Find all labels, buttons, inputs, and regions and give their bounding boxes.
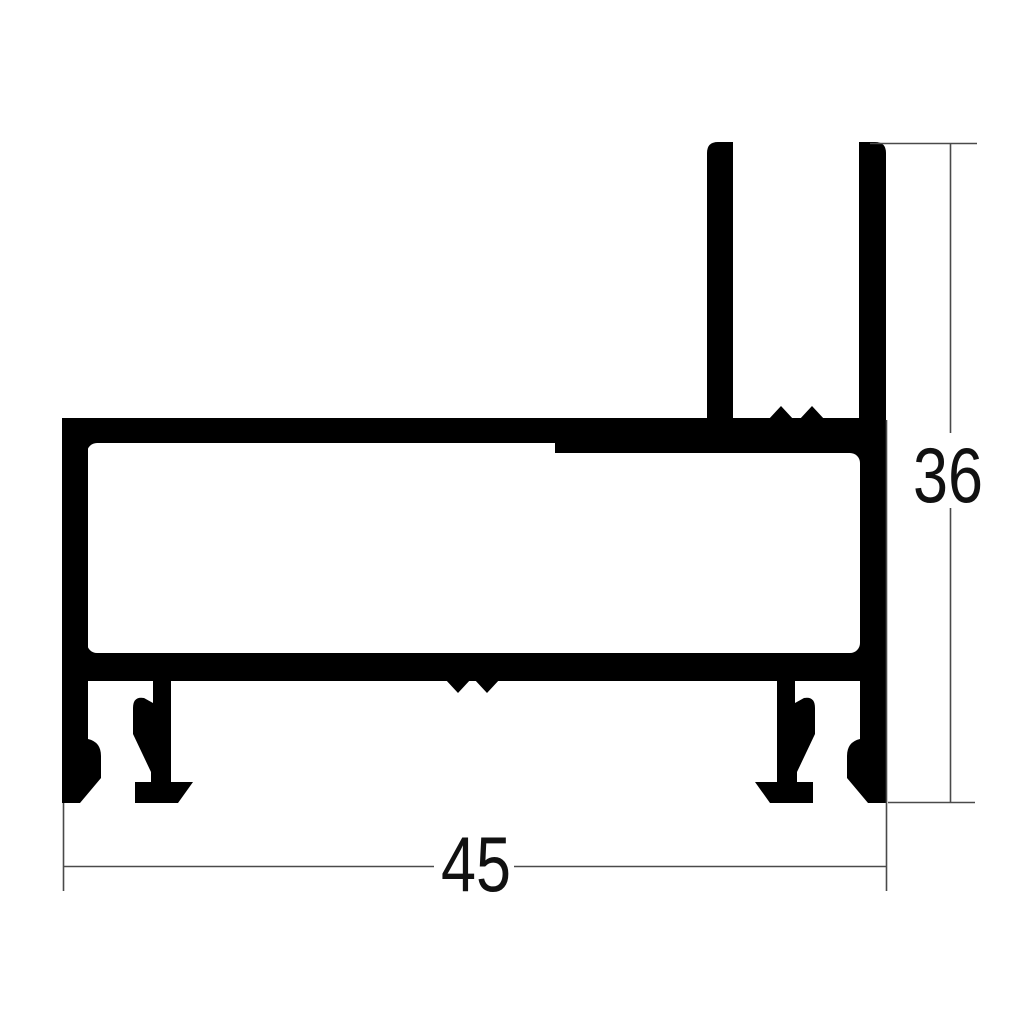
profile-right-fin	[859, 142, 886, 420]
profile-left-wall	[62, 418, 101, 803]
cavity-fillet-bottom-right	[850, 643, 860, 653]
top-serration-teeth	[768, 406, 825, 420]
dimension-lines	[63, 143, 977, 891]
bottom-serration-teeth	[445, 679, 500, 693]
profile-drawing-svg: 36 45	[0, 0, 1024, 1024]
cavity-fillet-bottom-left	[87, 643, 97, 653]
cavity-fillet-top-right	[850, 453, 860, 463]
width-dimension-label: 45	[441, 820, 511, 908]
profile-right-leg	[755, 681, 815, 803]
profile-top-wall-thick-section	[555, 418, 860, 453]
drawing-page: 36 45	[0, 0, 1024, 1024]
profile-left-leg	[133, 681, 193, 803]
profile-bottom-wall	[62, 653, 886, 681]
profile-right-wall	[847, 418, 886, 803]
profile-left-fin	[707, 142, 733, 420]
profile-shape	[62, 142, 886, 803]
cavity-fillet-top-left	[87, 443, 97, 453]
height-dimension-label: 36	[913, 431, 983, 519]
